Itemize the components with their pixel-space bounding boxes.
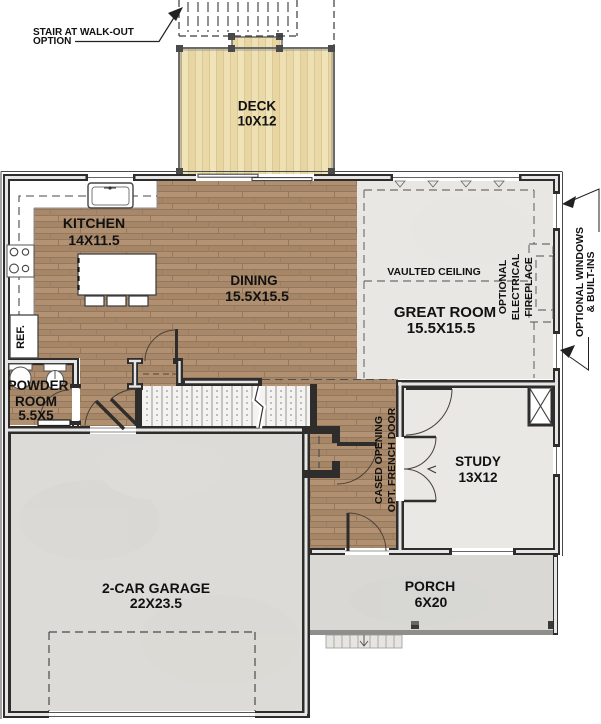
svg-text:ROOM: ROOM [15,394,57,409]
svg-text:& BUILT-INS: & BUILT-INS [585,251,597,312]
svg-text:5.5X5: 5.5X5 [18,408,54,423]
svg-text:OPTIONAL: OPTIONAL [497,259,509,314]
svg-text:DECK: DECK [238,99,277,114]
svg-text:POWDER: POWDER [8,378,69,393]
svg-text:GREAT ROOM: GREAT ROOM [394,304,496,321]
svg-text:10X12: 10X12 [237,114,276,129]
svg-text:KITCHEN: KITCHEN [63,215,125,231]
svg-text:22X23.5: 22X23.5 [130,595,182,611]
svg-text:VAULTED CEILING: VAULTED CEILING [387,266,481,278]
svg-text:OPTION: OPTION [33,36,71,47]
svg-text:14X11.5: 14X11.5 [68,232,120,248]
svg-text:ELECTRICAL: ELECTRICAL [510,253,522,320]
svg-text:REF.: REF. [15,325,27,349]
svg-text:STUDY: STUDY [455,454,501,469]
svg-text:DINING: DINING [230,273,277,288]
svg-text:15.5X15.5: 15.5X15.5 [225,288,289,304]
svg-text:6X20: 6X20 [415,594,448,610]
svg-text:13X12: 13X12 [458,470,497,485]
svg-text:15.5X15.5: 15.5X15.5 [407,320,475,337]
svg-text:PORCH: PORCH [405,578,456,594]
svg-text:CASED OPENING: CASED OPENING [373,416,385,504]
svg-text:FIREPLACE: FIREPLACE [523,257,535,317]
svg-text:OPT. FRENCH DOOR: OPT. FRENCH DOOR [386,407,398,512]
svg-text:2-CAR GARAGE: 2-CAR GARAGE [102,580,210,596]
